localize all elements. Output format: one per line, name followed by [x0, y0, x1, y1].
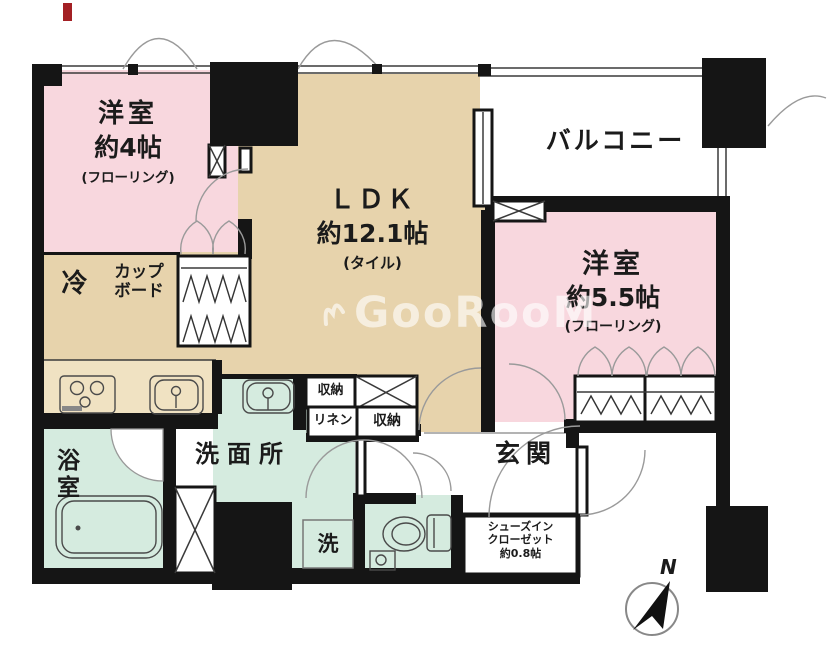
watermark: GooRooM — [322, 292, 597, 335]
cupboard-label: カップ ボード — [105, 263, 173, 301]
entry-door-leaf — [577, 447, 587, 515]
bedroom1-label: 洋室 約4帖 (フローリング) — [42, 100, 214, 186]
pillar — [706, 506, 768, 592]
pillar — [210, 62, 298, 146]
watermark-icon — [322, 294, 352, 332]
compass-needle — [633, 581, 670, 630]
floorplan-canvas: 洋室 約4帖 (フローリング) ＬＤＫ 約12.1帖 (タイル) バルコニー 洋… — [0, 0, 827, 655]
pillar — [212, 502, 292, 590]
storage-lower-label: 収納 — [357, 413, 417, 429]
balcony-label: バルコニー — [518, 127, 713, 156]
refrigerator-label: 冷 — [46, 270, 103, 300]
laundry-label: 洗 — [303, 532, 353, 556]
red-mark — [63, 3, 72, 21]
ldk-label: ＬＤＫ 約12.1帖 (タイル) — [290, 186, 455, 272]
watermark-text: GooRooM — [354, 292, 597, 335]
compass-north-label: N — [660, 556, 677, 579]
toilet-floor — [358, 495, 458, 574]
storage-upper-label: 収納 — [306, 384, 355, 399]
window-swing-arc — [768, 96, 826, 126]
entrance-label: 玄関 — [478, 440, 574, 469]
shoe-closet-label: シューズイン クローゼット 約0.8帖 — [463, 521, 578, 561]
window-swing-arc — [298, 41, 380, 70]
linen-label: リネン — [308, 414, 358, 429]
washroom-label: 洗面所 — [176, 441, 310, 469]
bathroom-label: 浴室 — [52, 437, 78, 513]
compass — [626, 581, 678, 635]
washroom-door-leaf — [357, 438, 365, 496]
